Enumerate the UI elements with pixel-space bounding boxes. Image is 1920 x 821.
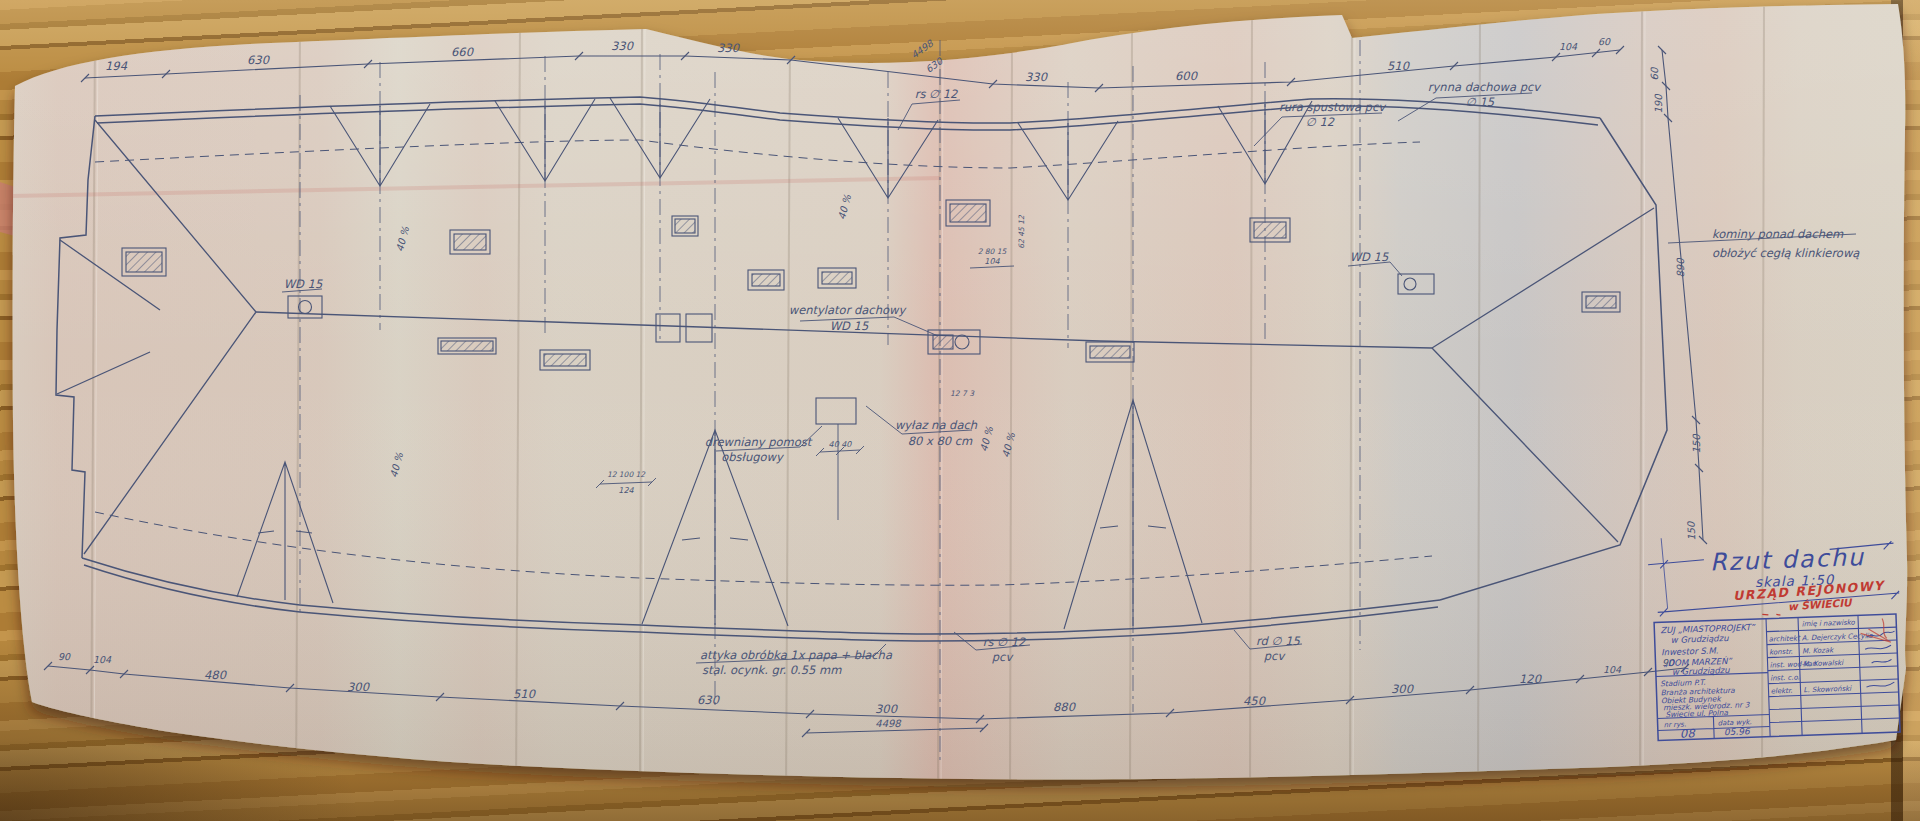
dim-12-7-3: 12 7 3	[950, 389, 975, 398]
dim-bottom-6: 300	[875, 702, 899, 716]
drawing-title: Rzut dachu	[1710, 543, 1866, 576]
label-wentylator-2: WD 15	[830, 319, 869, 333]
dim-2-80-15: 2 80 15	[978, 247, 1008, 256]
dim-right-3: 150	[1691, 433, 1702, 454]
dim-bottom-0: 90	[58, 651, 71, 662]
dim-12-100-12: 12 100 12	[607, 470, 646, 479]
dim-top-4: 330	[717, 41, 741, 55]
label-rs-top: rs ∅ 12	[915, 87, 958, 101]
dim-bottom-10: 120	[1519, 672, 1543, 686]
dim-62-45-12: 62 45 12	[1017, 214, 1026, 249]
name-1: M. Kozak	[1802, 646, 1834, 655]
dim-title-150: 150	[1686, 520, 1698, 541]
dim-bottom-2: 480	[204, 668, 228, 682]
drawing-number-value: 08	[1680, 726, 1697, 741]
blueprint-canvas: 194 630 660 330 330 4498 630 330 600 510…	[0, 0, 1920, 821]
dim-top-1: 630	[247, 53, 271, 67]
dim-104: 104	[984, 257, 1000, 266]
name-4: L. Skowroński	[1803, 685, 1852, 695]
label-kominy-2: obłożyć cegłą klinkierową	[1712, 246, 1860, 260]
dim-bottom-11: 104	[1603, 664, 1622, 675]
dim-bottom-5: 630	[697, 693, 721, 707]
dim-bottom-8: 450	[1243, 694, 1267, 708]
label-wd15-right: WD 15	[1350, 250, 1389, 264]
photo-of-blueprint-on-table: 194 630 660 330 330 4498 630 330 600 510…	[0, 0, 1920, 821]
dim-top-total: 4498	[909, 37, 936, 61]
label-wylaz-2: 80 x 80 cm	[908, 434, 973, 448]
label-rynna-dachowa: rynna dachowa pcv	[1428, 80, 1543, 94]
dim-right-1: 190	[1653, 93, 1664, 114]
role-4: elektr.	[1770, 687, 1792, 696]
firm-line-5: w Grudziądzu	[1672, 665, 1731, 677]
role-0: architekt	[1769, 634, 1802, 643]
dim-top-2: 660	[451, 45, 475, 59]
dim-right-0: 60	[1649, 66, 1660, 80]
dim-top-6: 600	[1175, 69, 1199, 83]
label-rura-spustowa: rura spustowa pcv	[1279, 100, 1387, 114]
dim-top-5: 330	[1025, 70, 1049, 84]
dim-bottom-4: 510	[513, 687, 537, 701]
dim-124: 124	[618, 486, 634, 495]
dim-right-2: 890	[1675, 257, 1686, 278]
label-wd15-left: WD 15	[284, 277, 323, 291]
dim-bottom-3: 300	[347, 680, 371, 694]
label-rs-bottom-2: pcv	[992, 650, 1015, 664]
dim-top-3: 330	[611, 39, 635, 53]
dim-top-0: 194	[105, 59, 128, 73]
label-rs-bottom-1: rs ∅ 12	[983, 635, 1026, 649]
dim-bottom-1: 104	[93, 654, 112, 665]
label-wylaz-1: wyłaz na dach	[895, 418, 978, 432]
dim-bottom-7: 880	[1053, 700, 1077, 714]
label-pomost-1: drewniany pomost	[705, 435, 813, 449]
label-rynna-dachowa-dia: ∅ 15	[1466, 95, 1495, 109]
dim-platform-40-40: 40 40	[829, 440, 853, 449]
name-2: M. Kowalski	[1803, 659, 1845, 668]
dim-top-9: 60	[1598, 36, 1611, 47]
label-rd-bottom-1: rd ∅ 15	[1256, 634, 1300, 648]
drawing-date-value: 05.96	[1724, 726, 1751, 737]
label-attyka-2: stal. ocynk. gr. 0.55 mm	[702, 663, 842, 677]
role-3: inst. c.o.	[1770, 673, 1800, 682]
dim-top-8: 104	[1559, 41, 1578, 52]
firm-line-3: Inwestor S.M.	[1661, 645, 1719, 657]
label-rd-bottom-2: pcv	[1264, 649, 1287, 663]
firm-line-2: w Grudziądzu	[1671, 633, 1730, 645]
label-pomost-2: obsługowy	[721, 450, 785, 464]
label-kominy-1: kominy ponad dachem	[1712, 227, 1844, 241]
role-1: konstr.	[1769, 648, 1793, 657]
label-rura-spustowa-dia: ∅ 12	[1306, 115, 1335, 129]
label-attyka-1: attyka obróbka 1x papa + blacha	[700, 648, 893, 662]
label-wentylator-1: wentylator dachowy	[789, 303, 908, 317]
dim-bottom-9: 300	[1391, 682, 1415, 696]
dim-top-7: 510	[1387, 59, 1411, 73]
dim-bottom-total: 4498	[875, 718, 902, 729]
